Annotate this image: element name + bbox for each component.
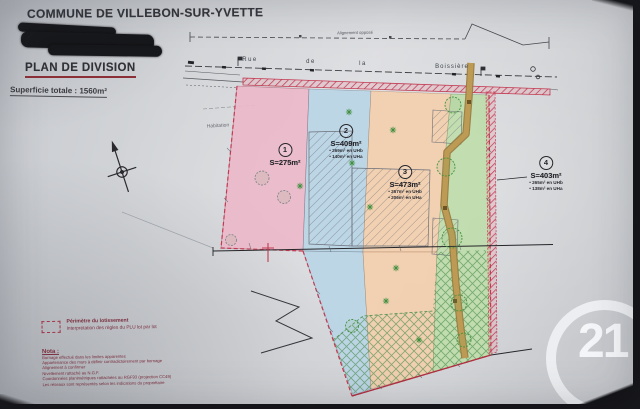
parcel-4-number: 4 [539, 156, 553, 170]
parcel-4-label: 4 S=403m² • 265m² en UHb • 138m² en UHa [529, 152, 563, 191]
parcel-2-surface: S=409m² [329, 139, 363, 148]
photo-edge [633, 0, 640, 409]
parcel-2-label: 2 S=409m² • 269m² en UHb • 140m² en UHa [329, 120, 363, 159]
manhole-icon [536, 75, 540, 79]
north-arrow-icon [98, 136, 143, 197]
parcel-2-detail: • 269m² en UHb [329, 148, 363, 154]
parcel-3-detail: • 267m² en UHb [388, 189, 422, 195]
legend-perimeter-sub: Interprétation des règles du PLU lot par… [67, 325, 157, 332]
neighbour-building-outline [251, 291, 312, 353]
parcel-3-number: 3 [398, 165, 412, 179]
century21-logo-number: 21 [578, 314, 627, 369]
street-name-word: Rue [242, 57, 258, 63]
street-name-word: de [306, 59, 316, 65]
parcel-4-surface: S=403m² [529, 171, 563, 180]
manhole-icon [531, 67, 536, 72]
street-name-word: Boissière [435, 64, 469, 70]
parcel-3-detail: • 206m² en UHa [388, 195, 422, 201]
photo-edge [0, 404, 640, 409]
parcel-1-label: 1 S=275m² [269, 139, 300, 167]
parcel-2-detail: • 140m² en UHa [329, 154, 363, 160]
parcel-2-number: 2 [339, 124, 353, 138]
street-alignment [190, 24, 549, 49]
parcel-1-surface: S=275m² [269, 158, 300, 167]
photo-edge [568, 381, 640, 409]
neighbour-boundary-line [122, 212, 213, 248]
legend-perimeter-label: Périmètre du lotissement [66, 317, 156, 325]
total-area-label: Superficie totale : 1560m² [10, 85, 107, 98]
legend: Périmètre du lotissement Interprétation … [41, 317, 171, 388]
photo-edge [592, 0, 640, 12]
parcel-3-surface: S=473m² [388, 180, 422, 189]
parcel-4-leader-line [497, 177, 527, 180]
parcel-4-detail: • 138m² en UHa [529, 186, 563, 192]
parcel-3-label: 3 S=473m² • 267m² en UHb • 206m² en UHa [388, 161, 422, 200]
habitation-label: Habitation [207, 122, 230, 129]
parcel-4-detail: • 265m² en UHb [529, 180, 563, 186]
plan-title: PLAN DE DIVISION [25, 62, 136, 78]
commune-title: COMMUNE DE VILLEBON-SUR-YVETTE [27, 5, 263, 21]
photo-edge [0, 394, 48, 409]
parcel-1-number: 1 [278, 143, 292, 157]
scanned-division-plan: Alignement opposé Rue de la Boissière Ha… [0, 0, 640, 409]
alignment-label: Alignement opposé [337, 30, 374, 36]
parcel-1-area [221, 86, 309, 251]
street-name-word: la [359, 61, 367, 67]
perimeter-symbol-icon [41, 321, 60, 333]
